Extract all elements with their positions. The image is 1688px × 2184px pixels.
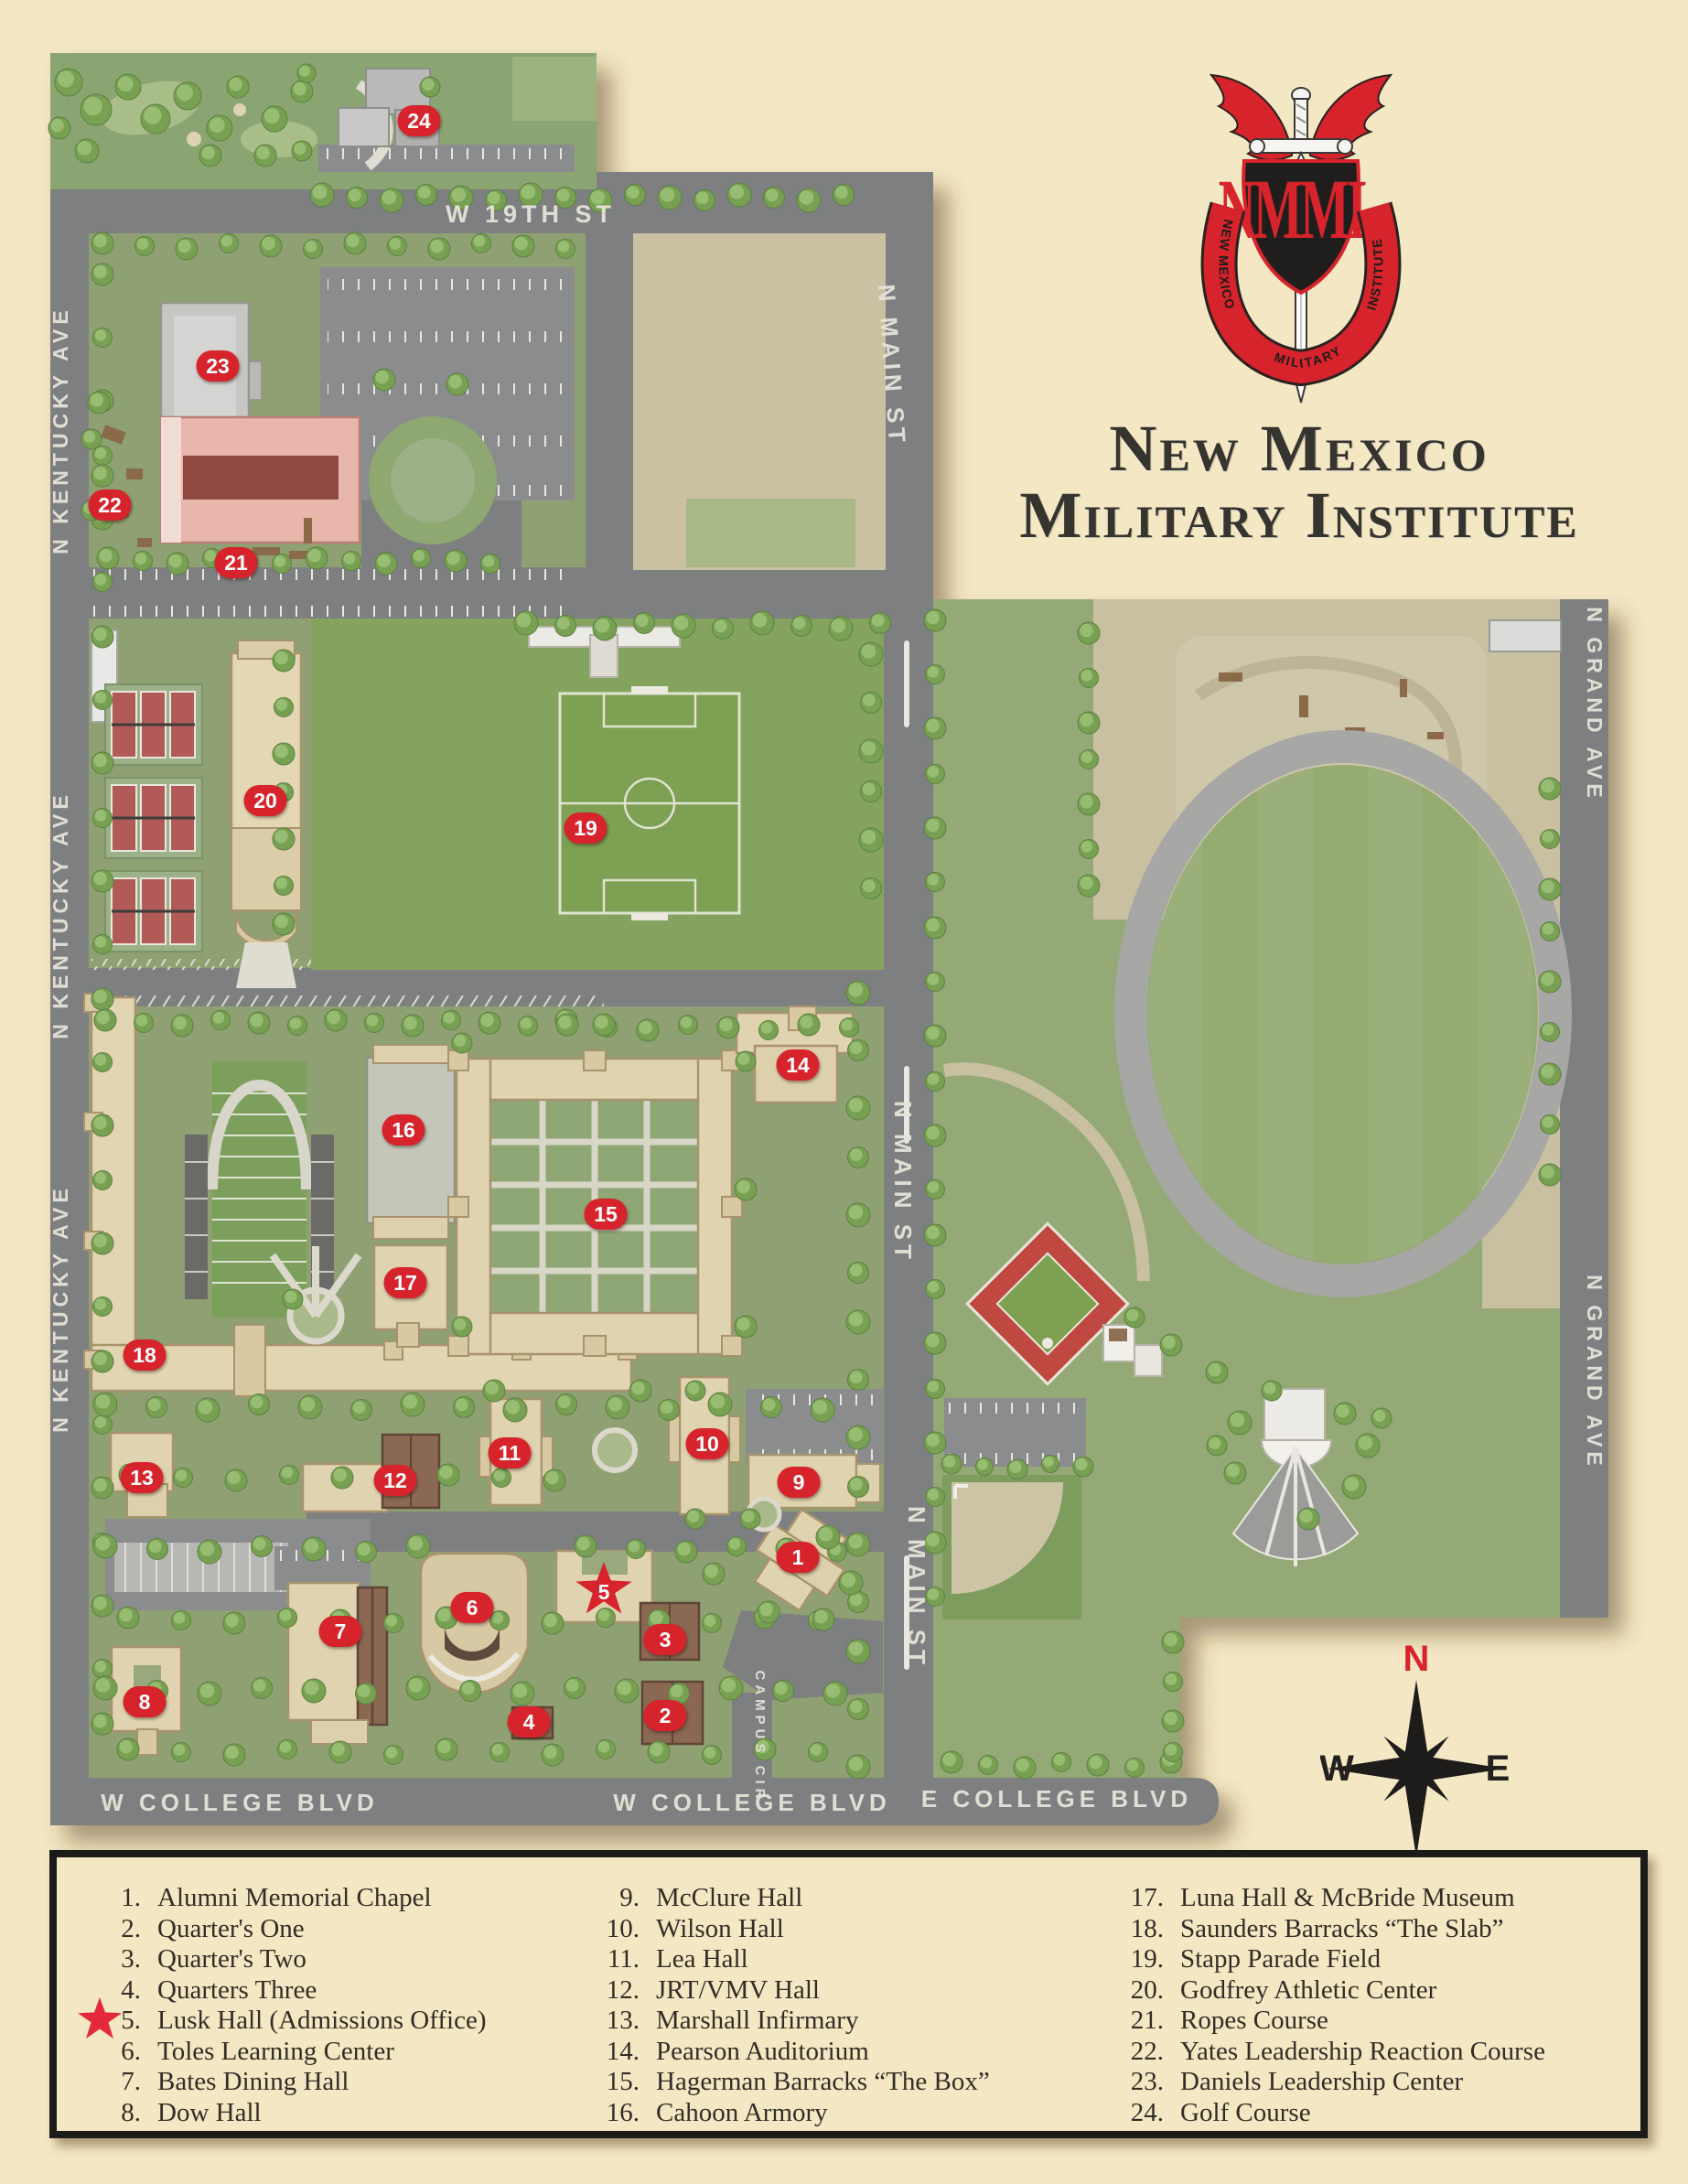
crest-monogram: NMMI — [1219, 162, 1366, 257]
legend-item-4: 4.Quarters Three — [93, 1975, 487, 2006]
legend-label: Quarter's One — [157, 1914, 305, 1945]
legend-item-16: 16.Cahoon Armory — [592, 2098, 990, 2129]
legend-item-8: 8.Dow Hall — [93, 2098, 487, 2129]
legend-number: 21. — [1116, 2006, 1164, 2037]
legend-number: 16. — [592, 2098, 640, 2129]
street-label: N GRAND AVE — [1583, 607, 1607, 802]
legend-column: 1.Alumni Memorial Chapel2.Quarter's One3… — [93, 1883, 487, 2128]
legend-item-18: 18.Saunders Barracks “The Slab” — [1116, 1914, 1545, 1945]
street-label: N KENTUCKY AVE — [48, 1184, 72, 1433]
legend-number: 23. — [1116, 2067, 1164, 2098]
street-label: N GRAND AVE — [1583, 1275, 1607, 1469]
legend-label: Lea Hall — [656, 1944, 748, 1975]
legend-item-14: 14.Pearson Auditorium — [592, 2037, 990, 2068]
legend-label: Wilson Hall — [656, 1914, 784, 1945]
compass-west: W — [1320, 1748, 1354, 1789]
legend-item-23: 23.Daniels Leadership Center — [1116, 2067, 1545, 2098]
legend-item-6: 6.Toles Learning Center — [93, 2037, 487, 2068]
legend-number: 20. — [1116, 1975, 1164, 2006]
legend-label: Luna Hall & McBride Museum — [1180, 1883, 1515, 1914]
street-label: N MAIN ST — [903, 1506, 930, 1669]
legend-item-1: 1.Alumni Memorial Chapel — [93, 1883, 487, 1914]
street-label: W 19TH ST — [446, 200, 616, 228]
stapp-parade-field — [311, 619, 884, 970]
legend-label: Lusk Hall (Admissions Office) — [157, 2006, 487, 2037]
legend-item-5: 5.Lusk Hall (Admissions Office) — [93, 2006, 487, 2037]
legend-item-20: 20.Godfrey Athletic Center — [1116, 1975, 1545, 2006]
legend-label: Godfrey Athletic Center — [1180, 1975, 1436, 2006]
legend-label: Daniels Leadership Center — [1180, 2067, 1463, 2098]
legend-item-2: 2.Quarter's One — [93, 1914, 487, 1945]
legend: 1.Alumni Memorial Chapel2.Quarter's One3… — [49, 1850, 1648, 2138]
compass-east: E — [1486, 1748, 1511, 1789]
legend-number: 1. — [93, 1883, 141, 1914]
legend-number: 22. — [1116, 2037, 1164, 2068]
legend-label: Saunders Barracks “The Slab” — [1180, 1914, 1504, 1945]
legend-number: 9. — [592, 1883, 640, 1914]
legend-item-15: 15.Hagerman Barracks “The Box” — [592, 2067, 990, 2098]
legend-number: 7. — [93, 2067, 141, 2098]
legend-label: Marshall Infirmary — [656, 2006, 858, 2037]
campus-map-page: W 19TH STN KENTUCKY AVEN KENTUCKY AVEN K… — [0, 0, 1688, 2184]
legend-item-24: 24.Golf Course — [1116, 2098, 1545, 2129]
legend-number: 19. — [1116, 1944, 1164, 1975]
legend-item-13: 13.Marshall Infirmary — [592, 2006, 990, 2037]
street-label: N MAIN ST — [889, 1101, 917, 1264]
legend-item-22: 22.Yates Leadership Reaction Course — [1116, 2037, 1545, 2068]
street-label: CAMPUS CIR — [752, 1670, 768, 1802]
page-title: New Mexico Military Institute — [947, 416, 1651, 550]
title-line-1: New Mexico — [947, 416, 1651, 480]
legend-item-7: 7.Bates Dining Hall — [93, 2067, 487, 2098]
legend-item-11: 11.Lea Hall — [592, 1944, 990, 1975]
compass-star — [1328, 1680, 1505, 1857]
legend-label: Ropes Course — [1180, 2006, 1328, 2037]
pearson-auditorium — [736, 1006, 853, 1103]
legend-label: Alumni Memorial Chapel — [157, 1883, 432, 1914]
legend-column: 17.Luna Hall & McBride Museum18.Saunders… — [1116, 1883, 1545, 2128]
street-label: W COLLEGE BLVD — [101, 1789, 379, 1816]
legend-label: Cahoon Armory — [656, 2098, 828, 2129]
legend-number: 8. — [93, 2098, 141, 2129]
legend-label: Yates Leadership Reaction Course — [1180, 2037, 1545, 2068]
street-label: W COLLEGE BLVD — [613, 1789, 891, 1816]
legend-number: 14. — [592, 2037, 640, 2068]
legend-label: Golf Course — [1180, 2098, 1311, 2129]
legend-label: Pearson Auditorium — [656, 2037, 869, 2068]
legend-label: Dow Hall — [157, 2098, 262, 2129]
legend-label: Toles Learning Center — [157, 2037, 394, 2068]
hagerman-barracks-box — [448, 1050, 742, 1356]
compass-north: N — [1403, 1639, 1430, 1679]
nmmi-crest: NMMI NEW MEXICO MILITARY INSTITUTE — [1182, 44, 1420, 428]
legend-label: Bates Dining Hall — [157, 2067, 349, 2098]
legend-item-21: 21.Ropes Course — [1116, 2006, 1545, 2037]
legend-label: Quarters Three — [157, 1975, 317, 2006]
legend-label: Hagerman Barracks “The Box” — [656, 2067, 990, 2098]
legend-item-9: 9.McClure Hall — [592, 1883, 990, 1914]
legend-number: 2. — [93, 1914, 141, 1945]
legend-item-10: 10.Wilson Hall — [592, 1914, 990, 1945]
legend-item-17: 17.Luna Hall & McBride Museum — [1116, 1883, 1545, 1914]
legend-number: 24. — [1116, 2098, 1164, 2129]
legend-number: 17. — [1116, 1883, 1164, 1914]
legend-number: 18. — [1116, 1914, 1164, 1945]
legend-number: 13. — [592, 2006, 640, 2037]
track-oval — [1131, 747, 1555, 1286]
legend-column: 9.McClure Hall10.Wilson Hall11.Lea Hall1… — [592, 1883, 990, 2128]
legend-number: 6. — [93, 2037, 141, 2068]
legend-item-19: 19.Stapp Parade Field — [1116, 1944, 1545, 1975]
legend-number: 12. — [592, 1975, 640, 2006]
legend-item-12: 12.JRT/VMV Hall — [592, 1975, 990, 2006]
legend-item-3: 3.Quarter's Two — [93, 1944, 487, 1975]
legend-number: 10. — [592, 1914, 640, 1945]
street-label: E COLLEGE BLVD — [921, 1785, 1192, 1813]
legend-number: 5. — [93, 2006, 141, 2037]
street-label: N KENTUCKY AVE — [48, 791, 72, 1039]
legend-number: 3. — [93, 1944, 141, 1975]
legend-number: 11. — [592, 1944, 640, 1975]
legend-label: JRT/VMV Hall — [656, 1975, 820, 2006]
legend-label: Stapp Parade Field — [1180, 1944, 1381, 1975]
bates-dining-hall — [288, 1583, 387, 1744]
legend-number: 15. — [592, 2067, 640, 2098]
street-label: N KENTUCKY AVE — [48, 306, 72, 554]
legend-label: McClure Hall — [656, 1883, 802, 1914]
title-line-2: Military Institute — [947, 480, 1651, 550]
legend-label: Quarter's Two — [157, 1944, 306, 1975]
